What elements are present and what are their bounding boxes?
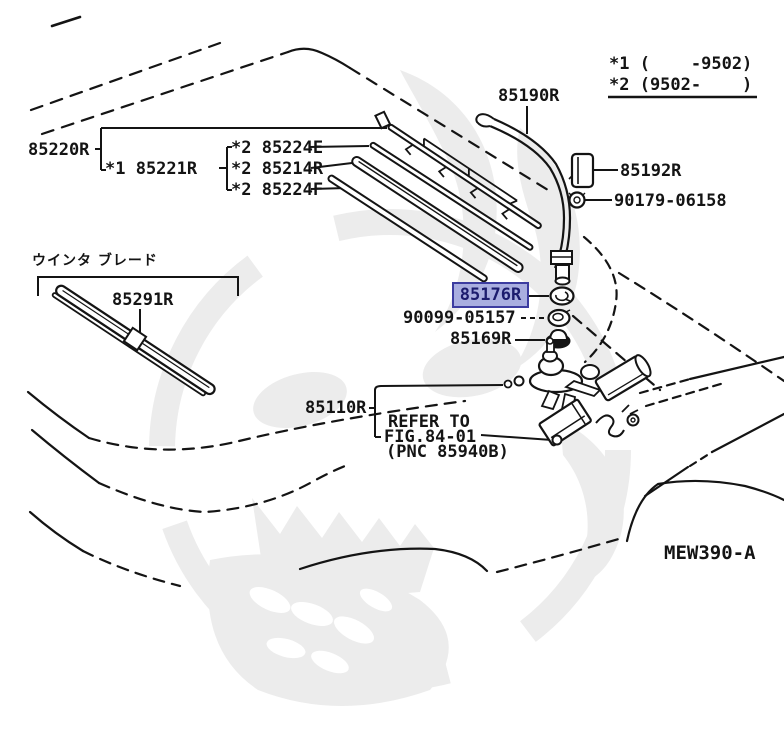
part-label-90099-05157[interactable]: 90099-05157	[403, 309, 516, 327]
part-label-90179-06158[interactable]: 90179-06158	[614, 192, 727, 210]
part-label-85190r[interactable]: 85190R	[498, 87, 559, 105]
nut-90179	[569, 193, 585, 208]
part-label-85214r[interactable]: *2 85214R	[231, 160, 323, 178]
parts-diagram-page: *1 ( -9502) *2 (9502- ) 85220R *1 85221R…	[0, 0, 784, 746]
washer-85176	[551, 288, 574, 305]
diagram-line-art	[0, 0, 784, 746]
part-label-85224e[interactable]: *2 85224E	[231, 139, 323, 157]
washer-90099	[549, 310, 571, 326]
winter-blade-caption: ウインタ ブレード	[32, 252, 158, 270]
figure-code: MEW390-A	[664, 544, 756, 562]
highlighted-part-85176r[interactable]: 85176R	[452, 282, 529, 308]
part-label-85192r[interactable]: 85192R	[620, 162, 681, 180]
note-range-1: *1 ( -9502)	[609, 55, 752, 73]
part-label-85221r[interactable]: *1 85221R	[105, 160, 197, 178]
refer-note-line3: (PNC 85940B)	[386, 443, 509, 461]
part-label-85291r[interactable]: 85291R	[112, 291, 173, 309]
note-range-2: *2 (9502- )	[609, 76, 752, 94]
arm-cap-85192	[569, 154, 593, 187]
part-label-85176r: 85176R	[460, 286, 521, 304]
part-label-85220r[interactable]: 85220R	[28, 141, 89, 159]
part-label-85110r[interactable]: 85110R	[305, 399, 366, 417]
part-label-85224f[interactable]: *2 85224F	[231, 181, 323, 199]
part-label-85169r[interactable]: 85169R	[450, 330, 511, 348]
